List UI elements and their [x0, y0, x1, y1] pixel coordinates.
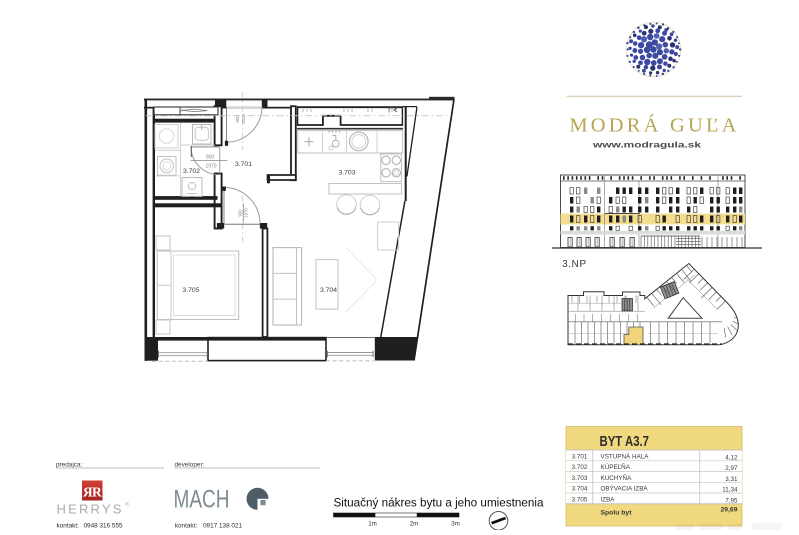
svg-text:3.704: 3.704 — [572, 486, 588, 493]
svg-text:3.701: 3.701 — [235, 161, 252, 168]
svg-text:3.704: 3.704 — [320, 287, 337, 294]
svg-text:3.705: 3.705 — [182, 287, 199, 294]
svg-text:2,97: 2,97 — [725, 465, 738, 472]
svg-text:developer:: developer: — [175, 462, 205, 469]
svg-text:KUCHYŇA: KUCHYŇA — [601, 473, 633, 482]
svg-text:www.modragula.sk: www.modragula.sk — [592, 141, 702, 150]
svg-text:predajca:: predajca: — [56, 462, 83, 469]
svg-text:kontakt:: kontakt: — [175, 523, 198, 530]
svg-text:900: 900 — [238, 209, 243, 217]
svg-text:3.NP: 3.NP — [562, 259, 587, 270]
svg-text:7,95: 7,95 — [725, 497, 738, 504]
svg-text:MACH: MACH — [174, 486, 230, 514]
svg-text:1m: 1m — [368, 521, 377, 528]
svg-text:Situačný nákres bytu a jeho um: Situačný nákres bytu a jeho umiestnenia — [334, 496, 544, 510]
svg-text:4,12: 4,12 — [725, 454, 738, 461]
svg-text:1970: 1970 — [243, 208, 248, 218]
svg-text:VSTUPNÁ HALA: VSTUPNÁ HALA — [601, 451, 650, 460]
svg-text:0917 138 021: 0917 138 021 — [203, 523, 243, 530]
svg-text:3.702: 3.702 — [572, 464, 588, 471]
svg-text:Spolu byt: Spolu byt — [601, 510, 633, 517]
svg-text:R: R — [92, 485, 102, 500]
svg-text:3.705: 3.705 — [572, 496, 588, 503]
svg-text:HERRYS: HERRYS — [57, 502, 124, 517]
svg-text:2020: 2020 — [241, 114, 246, 124]
svg-text:3.703: 3.703 — [338, 170, 355, 177]
svg-text:11,34: 11,34 — [722, 487, 738, 494]
svg-text:®: ® — [125, 501, 129, 508]
svg-text:900: 900 — [206, 154, 215, 160]
svg-text:3.701: 3.701 — [572, 453, 588, 460]
svg-text:BYT A3.7: BYT A3.7 — [600, 434, 650, 450]
svg-text:KÚPEĽŇA: KÚPEĽŇA — [601, 462, 631, 471]
svg-text:29,69: 29,69 — [720, 507, 737, 514]
svg-text:3,31: 3,31 — [725, 476, 738, 483]
svg-text:OBÝVACIA IZBA: OBÝVACIA IZBA — [601, 484, 649, 493]
svg-text:900: 900 — [235, 115, 240, 123]
svg-text:1970: 1970 — [205, 163, 216, 169]
svg-text:IZBA: IZBA — [601, 496, 616, 503]
svg-text:3m: 3m — [451, 521, 460, 528]
svg-text:2m: 2m — [410, 521, 419, 528]
svg-text:3.703: 3.703 — [572, 475, 588, 482]
svg-text:kontakt:: kontakt: — [57, 523, 80, 530]
svg-text:0948 316 555: 0948 316 555 — [84, 523, 124, 530]
svg-text:3.702: 3.702 — [183, 168, 200, 175]
svg-text:MODRÁ GUĽA: MODRÁ GUĽA — [569, 114, 739, 137]
